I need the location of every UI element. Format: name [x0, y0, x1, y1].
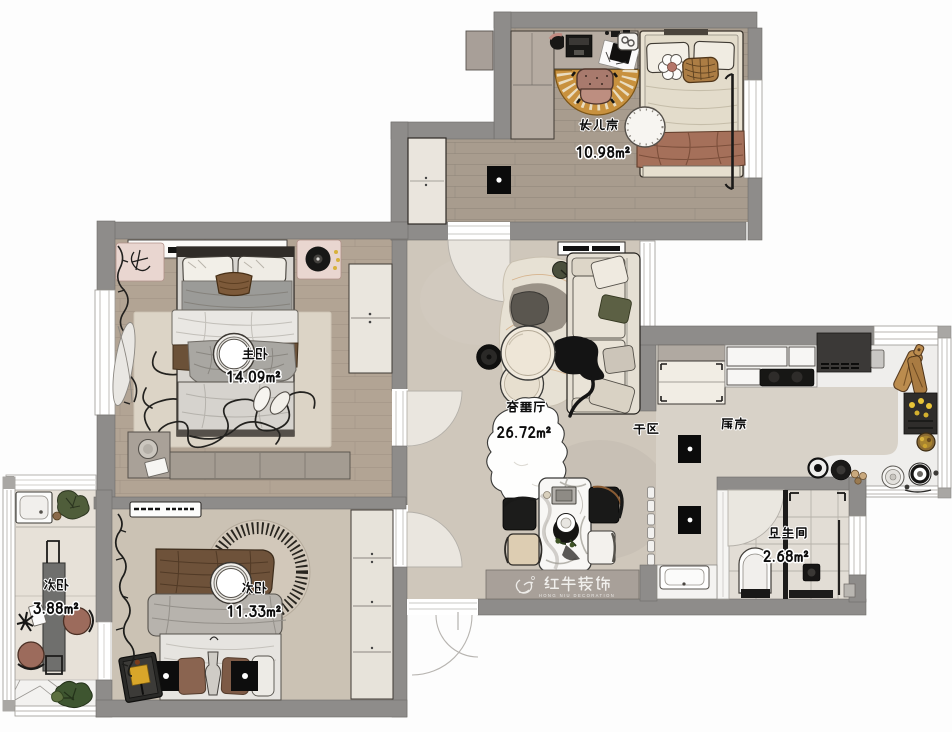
- svg-text:HONG NIU DECORATION: HONG NIU DECORATION: [539, 593, 615, 598]
